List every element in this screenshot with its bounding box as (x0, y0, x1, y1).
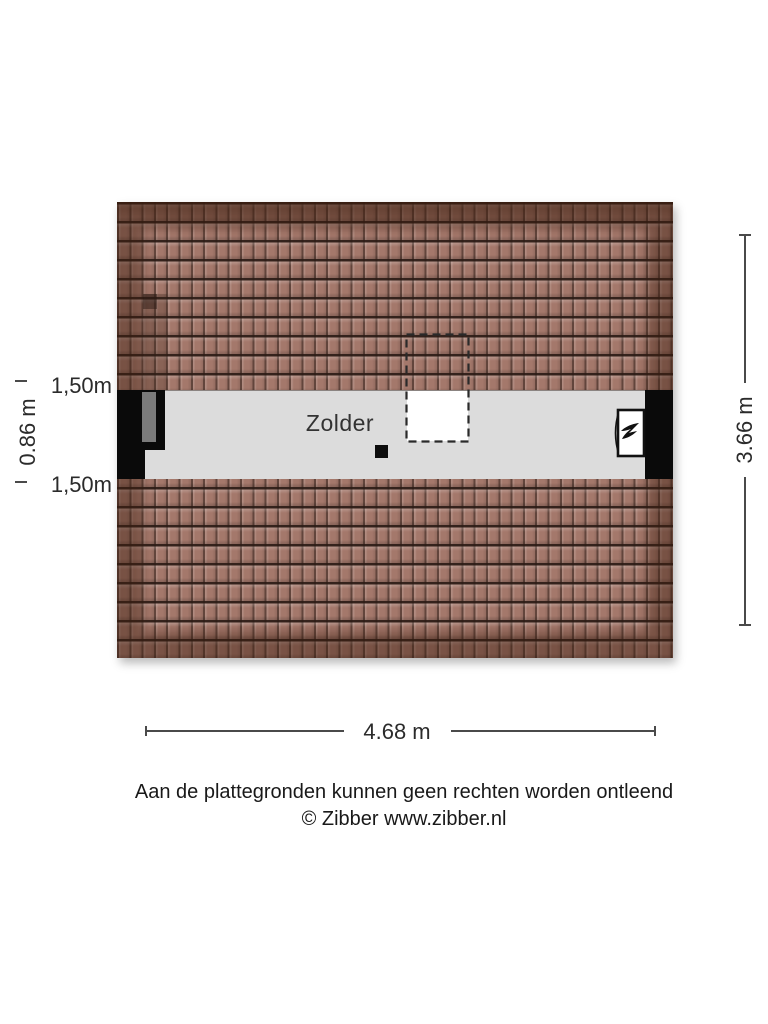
depth-dimension-line-upper (744, 235, 746, 383)
boiler-unit (610, 408, 646, 458)
left-height-dimension-label: 0.86 m (15, 390, 39, 474)
left-wall-lower (117, 450, 145, 479)
knee-wall-height-top-label: 1,50m (36, 373, 112, 399)
left-dimension-tick-top (15, 380, 27, 382)
attic-floor (117, 390, 673, 479)
depth-dimension-line-lower (744, 477, 746, 625)
width-dimension-tick-right (654, 726, 656, 736)
flue-shaft-cap (143, 294, 157, 309)
roof-window-dashed-outline (405, 333, 470, 443)
depth-dimension-label: 3.66 m (732, 385, 758, 475)
left-dimension-tick-bottom (15, 481, 27, 483)
width-dimension-tick-left (145, 726, 147, 736)
disclaimer-text: Aan de plattegronden kunnen geen rechten… (40, 781, 768, 804)
support-post (375, 445, 388, 458)
copyright-text: © Zibber www.zibber.nl (40, 808, 768, 831)
width-dimension-line-left (146, 730, 344, 732)
roof-window-icon (405, 333, 470, 443)
footer: Aan de plattegronden kunnen geen rechten… (40, 781, 768, 831)
duct-bar (142, 392, 156, 442)
right-wall (645, 390, 673, 479)
boiler-icon (610, 408, 646, 458)
floorplan-page: Zolder 1,50m 1,50m 0.86 m 3.66 m 4.68 m … (0, 0, 768, 1024)
width-dimension-line-right (451, 730, 655, 732)
width-dimension-label: 4.68 m (337, 719, 457, 745)
left-wall-upper (117, 390, 165, 450)
room-label: Zolder (300, 410, 380, 437)
depth-dimension-tick-bottom (739, 624, 751, 626)
knee-wall-height-bottom-label: 1,50m (36, 472, 112, 498)
depth-dimension-tick-top (739, 234, 751, 236)
